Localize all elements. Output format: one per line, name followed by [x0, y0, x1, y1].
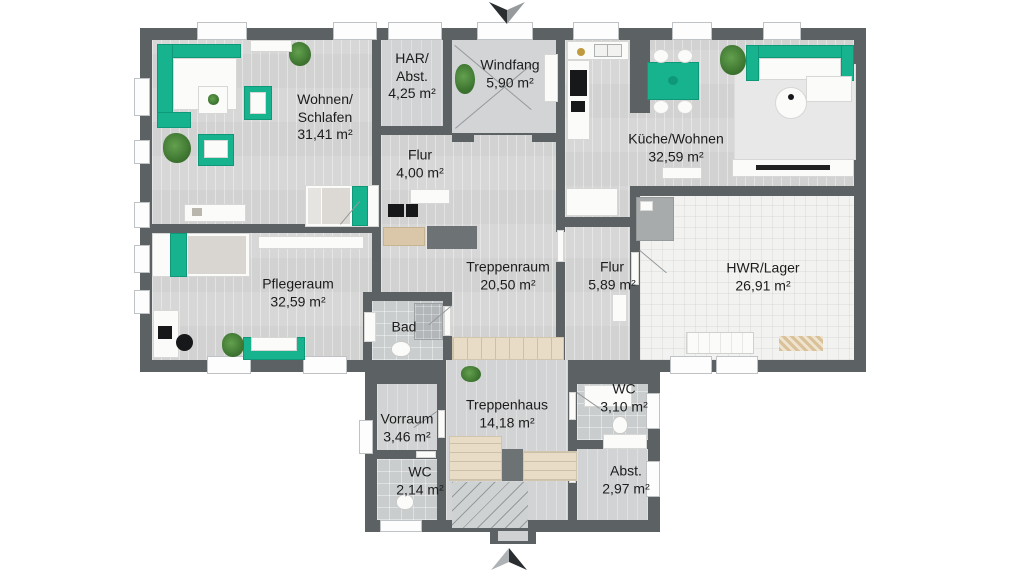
dining-chair-4 [677, 100, 693, 114]
window-left-3 [134, 202, 150, 228]
abst-cabinet [603, 434, 647, 449]
wall-windfang-bottom-b [532, 133, 565, 142]
sofa-wohnzone-arm-l [746, 45, 759, 81]
armchair-2-seat [204, 140, 228, 158]
door-treppenraum-flur [557, 230, 564, 262]
window-ext-bottom [380, 520, 422, 532]
sofa-wohnzone-chaise [806, 76, 852, 102]
window-left-2 [134, 140, 150, 164]
table-decor [788, 94, 794, 100]
wall-treppenraum-right-a [556, 142, 565, 232]
window-top-1 [197, 22, 247, 40]
desk-items [192, 208, 202, 216]
window-bottom-3 [670, 356, 712, 374]
window-left-5 [134, 290, 150, 314]
armchair-1-seat [250, 92, 266, 114]
wood-counter [383, 227, 425, 246]
bad-shower [414, 303, 443, 340]
sideboard-pflege [258, 236, 364, 249]
dining-table-decor [668, 76, 678, 85]
entry-arrow-down-icon [488, 2, 526, 24]
lowboard [662, 167, 702, 179]
closet-flur [566, 188, 618, 216]
dining-chair-1 [653, 49, 669, 63]
sofa-pflege-cushions [251, 337, 297, 351]
window-bottom-4 [716, 356, 758, 374]
hwr-mat [779, 336, 823, 351]
bad-toilet-icon [391, 341, 411, 357]
window-top-5 [573, 22, 619, 40]
plant-icon-windfang [455, 64, 475, 94]
door-hwr [631, 252, 639, 285]
wc-links-toilet-icon [396, 494, 414, 510]
bad-washbasin [364, 312, 376, 342]
door-wc-links [416, 451, 436, 458]
window-bottom-2 [303, 356, 347, 374]
wall-hwr-left-b [630, 285, 640, 360]
radiator-flur [612, 294, 627, 322]
dining-chair-3 [653, 100, 669, 114]
round-coffee-table [775, 87, 807, 119]
oven-icon [571, 101, 585, 112]
plant-icon-pflege [222, 333, 244, 357]
office-chair-icon [176, 334, 193, 351]
printer-icon [158, 326, 172, 339]
stairs-flight-left [449, 436, 502, 481]
stairs-landing [502, 449, 523, 481]
wall-har-bottom [372, 126, 452, 135]
window-ext-right-2 [646, 461, 660, 497]
wall-flur-niche [565, 217, 630, 227]
plant-icon-wohnzone [720, 45, 746, 75]
wall-har-windfang [443, 40, 452, 133]
wc-rechts-toilet-icon [612, 416, 628, 434]
tv-unit-a [388, 204, 404, 217]
entry-arrow-up-icon [490, 548, 528, 570]
plant-icon-wohnen-1 [163, 133, 191, 163]
wall-windfang-bottom-a [452, 133, 474, 142]
wall-vorraum-right-a [437, 384, 446, 410]
stairs-lower-run [452, 482, 528, 528]
entry-door-leaf [498, 531, 528, 541]
wall-vorraum-right-b [437, 438, 446, 520]
door-vorraum [438, 410, 445, 438]
hwr-sink [640, 201, 653, 211]
wall-wohnzone-hwr [630, 186, 854, 196]
window-left-1 [134, 78, 150, 116]
wall-treppenhaus-right-b [568, 420, 577, 455]
window-left-4 [134, 245, 150, 273]
bed-wohnen-pillow [308, 188, 321, 224]
window-ext-right-1 [646, 393, 660, 429]
cooktop-icon [570, 70, 587, 96]
corner-sofa-corner [157, 112, 191, 128]
door-wc-rechts [569, 392, 576, 420]
tv-icon [756, 165, 830, 170]
kitchen-block [427, 226, 477, 249]
plant-icon-treppenhaus [461, 366, 481, 382]
window-top-3 [388, 22, 442, 40]
gold-decor [577, 48, 585, 56]
wall-treppenhaus-right-a [568, 384, 577, 392]
window-ext-left [359, 420, 373, 454]
wall-bad-right-b [443, 336, 452, 360]
tv-unit-b [406, 204, 418, 217]
window-top-7 [763, 22, 801, 40]
stairs-flight-right [523, 451, 577, 481]
window-top-2 [333, 22, 377, 40]
sideboard-wohnen [250, 40, 292, 52]
floor-wc-links [377, 459, 437, 520]
wall-wohnen-right [372, 40, 381, 292]
wall-bad-top [363, 292, 452, 301]
plant-icon-wohnen-2 [289, 42, 311, 66]
kitchen-sink [594, 44, 622, 57]
window-top-6 [672, 22, 712, 40]
bed-pflege-blanket [188, 236, 246, 274]
floor-abstellraum [577, 449, 648, 520]
dining-chair-2 [677, 49, 693, 63]
kitchen-sink-divider [607, 45, 608, 56]
wall-vorraum-wc [377, 450, 415, 459]
table-plant-icon [208, 94, 219, 105]
sofa-wohnzone-back [746, 45, 854, 58]
window-top-4 [477, 22, 533, 40]
stairs-treppenraum [452, 337, 564, 360]
hwr-shelf [686, 332, 754, 354]
bench-windfang [544, 54, 558, 102]
cabinet-treppenraum [410, 189, 450, 204]
bed-pflege-headboard [170, 233, 187, 277]
floor-har-abst [381, 40, 443, 126]
wall-treppenhaus-right-c [568, 483, 577, 520]
floor-plan: Wohnen/ Schlafen31,41 m² HAR/ Abst.4,25 … [0, 0, 1024, 576]
